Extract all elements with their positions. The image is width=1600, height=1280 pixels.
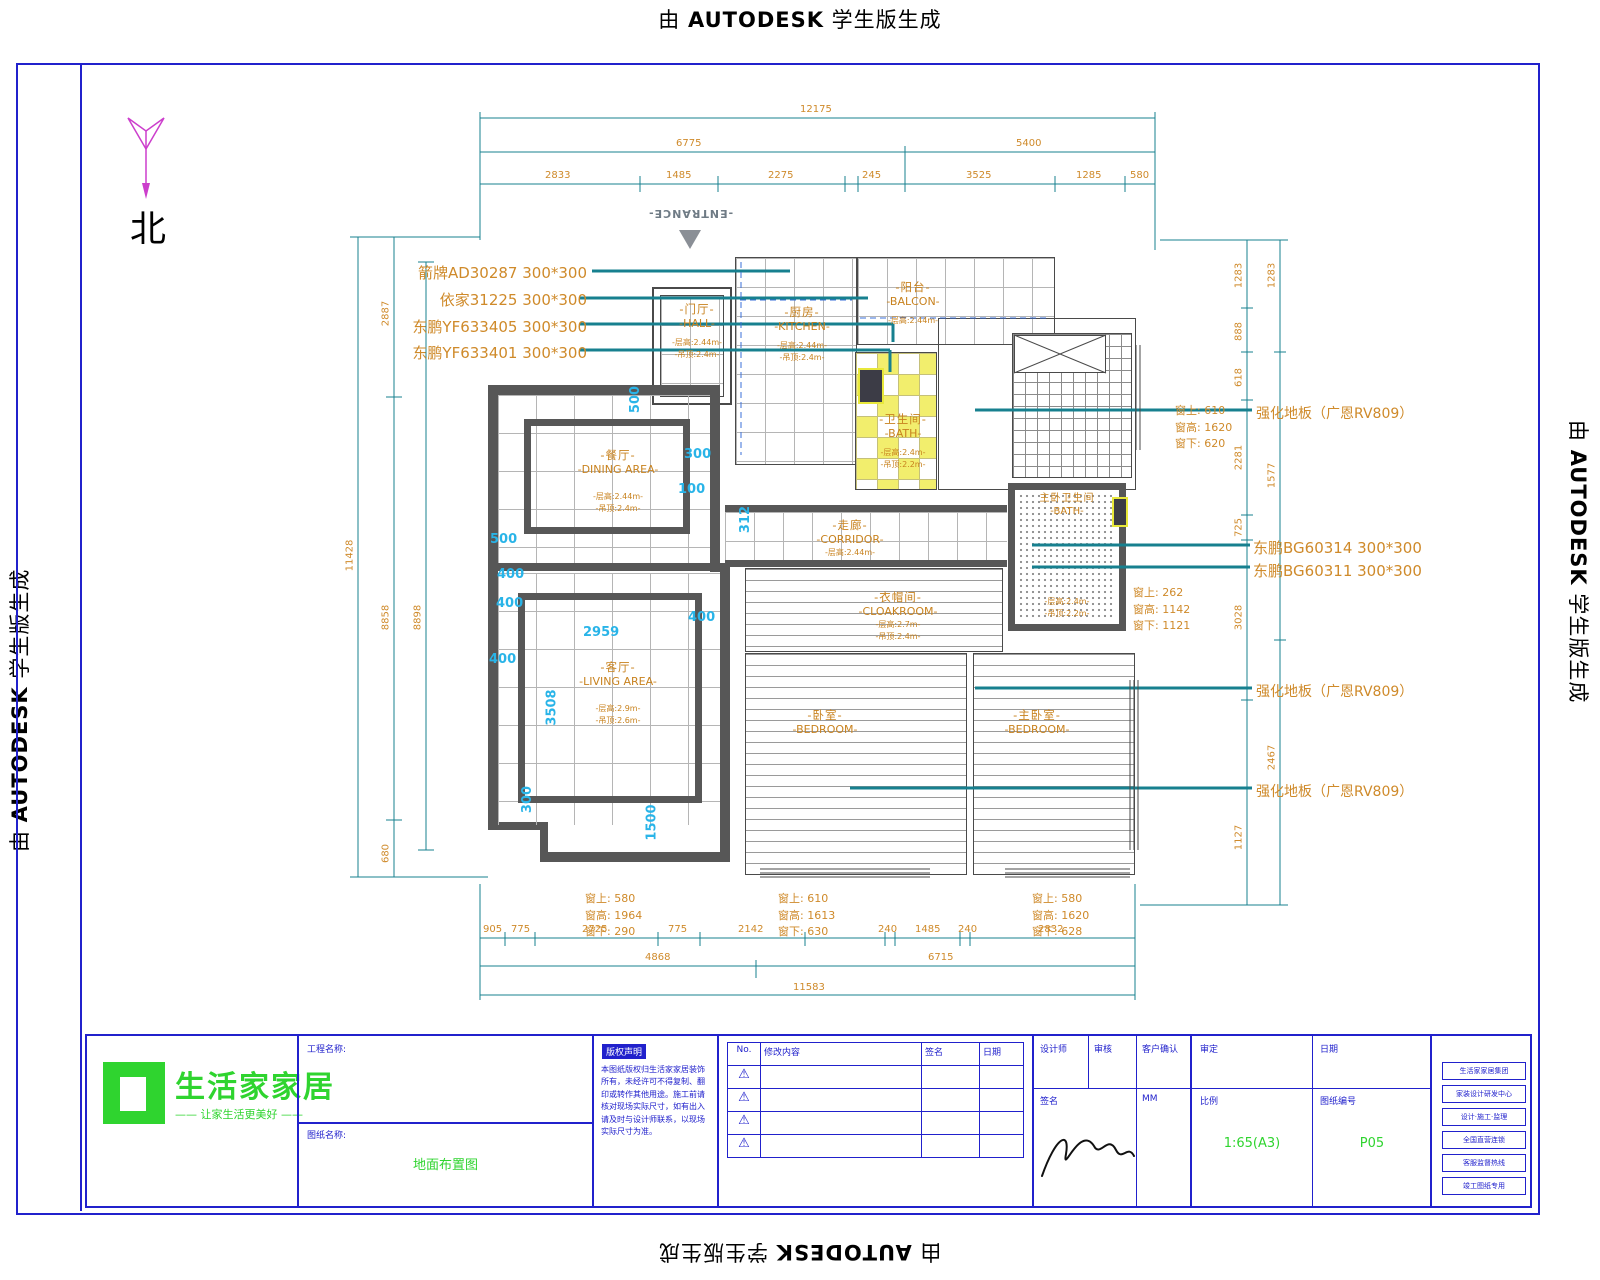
revision-date-cell xyxy=(979,1112,1023,1134)
floor-material-label: 强化地板（广恩RV809） xyxy=(1256,681,1413,701)
warning-triangle-icon: ⚠ xyxy=(738,1090,750,1105)
room-name-en: -BATH- xyxy=(1008,505,1126,518)
window-note: 窗高: 1620 xyxy=(1032,908,1089,925)
room-name-cn: -衣帽间- xyxy=(833,590,963,605)
wall-segment xyxy=(720,563,730,862)
revision-desc-cell xyxy=(760,1135,921,1157)
room-note: -层高:2.44m- xyxy=(785,547,915,559)
dim-label: 775 xyxy=(668,924,687,935)
room-name-en: -BEDROOM- xyxy=(972,723,1102,737)
title-block: 生活家家居 —— 让家生活更美好 —— 工程名称: 图纸名称: 地面布置图 版权… xyxy=(85,1034,1532,1208)
watermark-text: 由 xyxy=(912,1240,942,1264)
revision-sign-cell xyxy=(921,1112,979,1134)
dim-label: 6715 xyxy=(928,952,953,963)
tile-spec-label: 箭牌AD30287 300*300 xyxy=(382,262,587,283)
window-note: 窗高: 1142 xyxy=(1133,602,1190,619)
tile-offset: 312 xyxy=(738,506,753,533)
room-name-cn: -走廊- xyxy=(785,518,915,533)
dim-label: 618 xyxy=(1234,346,1245,410)
revision-sign-cell xyxy=(921,1089,979,1111)
tile-spec-label: 东鹏YF633401 300*300 xyxy=(382,342,587,363)
revision-desc-cell xyxy=(760,1089,921,1111)
drawing-name-value: 地面布置图 xyxy=(299,1154,592,1173)
room-name-cn: -卫生间- xyxy=(838,412,968,427)
wall-segment xyxy=(710,385,720,572)
window-note: 窗上: 610 xyxy=(1175,403,1232,420)
dim-label: 2833 xyxy=(545,170,570,181)
company-logo-icon xyxy=(103,1062,165,1124)
tile-offset: 400 xyxy=(688,610,715,625)
dim-label: 2832 xyxy=(1038,924,1063,935)
room-label-dining: -餐厅- -DINING AREA- -层高:2.44m- -吊顶:2.4m- xyxy=(553,448,683,514)
room-note: -层高:2.4m- xyxy=(838,447,968,459)
window-annotation: 窗上: 610 窗高: 1620 窗下: 620 xyxy=(1175,403,1232,453)
wall-segment xyxy=(488,385,720,395)
dim-label: 11583 xyxy=(793,982,825,993)
room-note: -层高:2.7m- xyxy=(833,619,963,631)
dim-label: 2142 xyxy=(738,924,763,935)
window-annotation: 窗上: 610 窗高: 1613 窗下: 630 xyxy=(778,891,835,941)
room-label-corridor: -走廊- -CORRIDOR- -层高:2.44m- xyxy=(785,518,915,559)
wall-segment xyxy=(540,852,730,862)
room-name-cn: -卧室- xyxy=(760,708,890,723)
dim-label: 3525 xyxy=(966,170,991,181)
drawing-sheet: 由 AUTODESK 学生版生成 由 AUTODESK 学生版生成 由 AUTO… xyxy=(0,0,1600,1280)
dim-label: 1577 xyxy=(1267,444,1278,508)
room-note: -吊顶:2.4m- xyxy=(553,503,683,515)
dim-label: 2281 xyxy=(1234,426,1245,490)
date-label: 日期 xyxy=(1320,1042,1338,1055)
revision-date-cell xyxy=(979,1089,1023,1111)
dim-label: 2467 xyxy=(1267,726,1278,790)
dim-label: 240 xyxy=(958,924,977,935)
notice-title: 版权声明 xyxy=(602,1044,646,1059)
dim-label: 1127 xyxy=(1234,806,1245,870)
approve-label: 审定 xyxy=(1200,1042,1218,1055)
dim-label: 4868 xyxy=(645,952,670,963)
window-note: 窗高: 1613 xyxy=(778,908,835,925)
room-note: -层高:2.4m- xyxy=(1012,596,1122,608)
title-block-scale-section: 审定 日期 比例 1:65(A3) 图纸编号 P05 xyxy=(1190,1036,1430,1206)
room-label-master-bath: 主卧卫生间 -BATH- xyxy=(1008,492,1126,518)
room-name-en: -BALCON- xyxy=(848,295,978,309)
tile-offset: 500 xyxy=(628,386,643,413)
company-info-boxes: 生活家家居集团 家装设计研发中心 设计·施工·监理 全国直营连锁 客服监督热线 … xyxy=(1442,1062,1526,1200)
wall-segment xyxy=(725,560,1007,567)
divider xyxy=(1034,1088,1190,1089)
revision-row: ⚠ xyxy=(728,1065,1023,1088)
tile-spec-label: 东鹏YF633405 300*300 xyxy=(382,316,587,337)
company-info-line: 设计·施工·监理 xyxy=(1442,1108,1526,1126)
floor-material-label: 强化地板（广恩RV809） xyxy=(1256,403,1413,423)
warning-triangle-icon: ⚠ xyxy=(738,1113,750,1128)
watermark-text: 学生版生成 xyxy=(658,1240,776,1264)
revision-row: ⚠ xyxy=(728,1088,1023,1111)
watermark-bottom: 由 AUTODESK 学生版生成 xyxy=(0,1238,1600,1268)
room-name-en: -DINING AREA- xyxy=(553,463,683,477)
room-name-en: -LIVING AREA- xyxy=(553,675,683,689)
room-name-cn: -客厅- xyxy=(553,660,683,675)
watermark-text: 由 xyxy=(1566,420,1590,450)
tile-offset: 500 xyxy=(490,532,517,547)
drawing-name-label: 图纸名称: xyxy=(307,1128,346,1141)
revision-date-cell xyxy=(979,1135,1023,1157)
room-note: -吊顶:2.2m- xyxy=(838,459,968,471)
title-block-info-section: 生活家家居集团 家装设计研发中心 设计·施工·监理 全国直营连锁 客服监督热线 … xyxy=(1430,1036,1534,1206)
dim-label: 580 xyxy=(1130,170,1149,181)
tile-spec-label: 东鹏BG60314 300*300 xyxy=(1253,537,1422,558)
company-logo-inner xyxy=(120,1077,146,1111)
room-label-bedroom-right: -主卧室- -BEDROOM- xyxy=(972,708,1102,737)
revision-desc-cell xyxy=(760,1112,921,1134)
dim-label: 725 xyxy=(1234,496,1245,560)
room-label-living: -客厅- -LIVING AREA- -层高:2.9m- -吊顶:2.6m- xyxy=(553,660,683,726)
unit-label: MM xyxy=(1142,1094,1158,1104)
window-note: 窗上: 580 xyxy=(1032,891,1089,908)
watermark-text: 学生版生成 xyxy=(824,8,942,32)
revision-row: ⚠ xyxy=(728,1134,1023,1157)
client-confirm-label: 客户确认 xyxy=(1142,1042,1178,1055)
revision-col-desc: 修改内容 xyxy=(760,1043,921,1065)
tile-offset: 100 xyxy=(678,482,705,497)
watermark-brand: AUTODESK xyxy=(776,1240,912,1264)
room-name-en: -CORRIDOR- xyxy=(785,533,915,547)
scale-value: 1:65(A3) xyxy=(1192,1136,1312,1151)
window-note: 窗高: 1964 xyxy=(585,908,642,925)
dim-label: 2725 xyxy=(582,924,607,935)
project-name-label: 工程名称: xyxy=(307,1042,346,1055)
dim-label: 1485 xyxy=(915,924,940,935)
window-note: 窗高: 1620 xyxy=(1175,420,1232,437)
window-note: 窗下: 620 xyxy=(1175,436,1232,453)
revision-sign-cell xyxy=(921,1135,979,1157)
company-info-line: 全国直营连锁 xyxy=(1442,1131,1526,1149)
room-note: -吊顶:2.2m- xyxy=(1012,608,1122,620)
room-note: -吊顶:2.4m- xyxy=(737,352,867,364)
dim-label: 8898 xyxy=(413,586,424,650)
dim-label: 775 xyxy=(511,924,530,935)
room-note: -层高:2.44m- xyxy=(737,340,867,352)
entrance-arrow-icon xyxy=(679,230,701,249)
title-block-logo-section: 生活家家居 —— 让家生活更美好 —— xyxy=(87,1036,297,1206)
room-label-bath: -卫生间- -BATH- -层高:2.4m- -吊顶:2.2m- xyxy=(838,412,968,470)
room-name-cn: -主卧室- xyxy=(972,708,1102,723)
dim-label: 680 xyxy=(381,822,392,886)
watermark-brand: AUTODESK xyxy=(688,8,824,32)
company-info-line: 客服监督热线 xyxy=(1442,1154,1526,1172)
checker-label: 审核 xyxy=(1094,1042,1112,1055)
notice-body: 本图纸版权归生活家家居装饰所有，未经许可不得复制、翻印或转作其他用途。施工前请核… xyxy=(601,1064,711,1138)
dim-label: 1283 xyxy=(1234,244,1245,308)
window-annotation: 窗上: 262 窗高: 1142 窗下: 1121 xyxy=(1133,585,1190,635)
wardrobe-crossed-box xyxy=(1014,335,1106,373)
title-block-name-section: 工程名称: 图纸名称: 地面布置图 xyxy=(297,1036,592,1206)
company-tagline: —— 让家生活更美好 —— xyxy=(175,1106,303,1122)
warning-triangle-icon: ⚠ xyxy=(738,1136,750,1151)
tile-spec-label: 依家31225 300*300 xyxy=(382,289,587,310)
tile-offset: 2959 xyxy=(583,625,619,640)
sheet-border-inner-line xyxy=(80,63,82,1211)
dim-label: 1283 xyxy=(1267,244,1278,308)
master-bath-notes: -层高:2.4m- -吊顶:2.2m- xyxy=(1012,596,1122,619)
dim-label: 8858 xyxy=(381,586,392,650)
scale-label: 比例 xyxy=(1200,1094,1218,1107)
tile-offset: 300 xyxy=(684,447,711,462)
room-name-en: -CLOAKROOM- xyxy=(833,605,963,619)
dim-label: 240 xyxy=(878,924,897,935)
divider xyxy=(1088,1036,1089,1088)
warning-triangle-icon: ⚠ xyxy=(738,1067,750,1082)
dim-label: 3028 xyxy=(1234,586,1245,650)
dim-label: 11428 xyxy=(345,524,356,588)
room-name-en: -BEDROOM- xyxy=(760,723,890,737)
wall-segment xyxy=(725,505,1007,512)
bedroom-left-floor xyxy=(745,653,967,875)
revision-col-date: 日期 xyxy=(979,1043,1023,1065)
window-note: 窗上: 262 xyxy=(1133,585,1190,602)
room-note: -层高:2.9m- xyxy=(553,703,683,715)
room-label-balcony: -阳台- -BALCON- -层高:2.44m- xyxy=(848,280,978,327)
room-note: -吊顶:2.4m- xyxy=(833,631,963,643)
designer-signature xyxy=(1036,1106,1136,1196)
tile-offset: 300 xyxy=(520,786,535,813)
room-note: -吊顶:2.6m- xyxy=(553,715,683,727)
divider xyxy=(299,1122,592,1124)
company-info-line: 家装设计研发中心 xyxy=(1442,1085,1526,1103)
revision-desc-cell xyxy=(760,1066,921,1088)
room-name-en: -BATH- xyxy=(838,427,968,441)
sheet-number-label: 图纸编号 xyxy=(1320,1094,1356,1107)
watermark-right: 由 AUTODESK 学生版生成 xyxy=(1564,420,1594,703)
wall-segment xyxy=(488,563,730,571)
dim-label: 5400 xyxy=(1016,138,1041,149)
revision-col-no: No. xyxy=(728,1043,760,1065)
divider xyxy=(1192,1088,1430,1089)
bedroom-right-floor xyxy=(973,653,1135,875)
tile-offset: 400 xyxy=(497,567,524,582)
designer-label: 设计师 xyxy=(1040,1042,1067,1055)
floor-material-label: 强化地板（广恩RV809） xyxy=(1256,781,1413,801)
tile-offset: 3508 xyxy=(545,689,560,725)
dim-label: 905 xyxy=(483,924,502,935)
revision-date-cell xyxy=(979,1066,1023,1088)
watermark-top: 由 AUTODESK 学生版生成 xyxy=(0,4,1600,34)
room-note: -层高:2.44m- xyxy=(848,315,978,327)
dim-label: 2887 xyxy=(381,282,392,346)
north-compass-icon xyxy=(122,113,170,205)
dim-label: 6775 xyxy=(676,138,701,149)
revision-col-sign: 签名 xyxy=(921,1043,979,1065)
company-info-line: 竣工图纸专用 xyxy=(1442,1177,1526,1195)
watermark-text: 由 xyxy=(658,8,688,32)
room-name-cn: -阳台- xyxy=(848,280,978,295)
divider xyxy=(1312,1036,1313,1206)
tile-offset: 400 xyxy=(489,652,516,667)
divider xyxy=(1136,1036,1137,1206)
dim-label: 2275 xyxy=(768,170,793,181)
room-note: -层高:2.44m- xyxy=(553,491,683,503)
window-note: 窗下: 1121 xyxy=(1133,618,1190,635)
revision-row: ⚠ xyxy=(728,1111,1023,1134)
watermark-brand: AUTODESK xyxy=(1566,450,1590,586)
tile-offset: 1500 xyxy=(645,804,660,840)
revision-header-row: No. 修改内容 签名 日期 xyxy=(728,1043,1023,1065)
window-note: 窗上: 580 xyxy=(585,891,642,908)
window-note: 窗下: 630 xyxy=(778,924,835,941)
revision-sign-cell xyxy=(921,1066,979,1088)
company-info-line: 生活家家居集团 xyxy=(1442,1062,1526,1080)
window-note: 窗上: 610 xyxy=(778,891,835,908)
dim-label: 1485 xyxy=(666,170,691,181)
north-label: 北 xyxy=(130,200,166,252)
sheet-number-value: P05 xyxy=(1312,1136,1432,1151)
title-block-signature-section: 设计师 审核 客户确认 签名 MM xyxy=(1032,1036,1190,1206)
entrance-label: -ENTRANCE- xyxy=(648,207,733,220)
tile-offset: 400 xyxy=(496,596,523,611)
room-name-cn: -餐厅- xyxy=(553,448,683,463)
dim-label: 1285 xyxy=(1076,170,1101,181)
watermark-text: 学生版生成 xyxy=(1566,586,1590,704)
title-block-revision-section: No. 修改内容 签名 日期 ⚠ ⚠ ⚠ xyxy=(717,1036,1032,1206)
dim-label: 245 xyxy=(862,170,881,181)
room-label-cloakroom: -衣帽间- -CLOAKROOM- -层高:2.7m- -吊顶:2.4m- xyxy=(833,590,963,642)
title-block-notice-section: 版权声明 本图纸版权归生活家家居装饰所有，未经许可不得复制、翻印或转作其他用途。… xyxy=(592,1036,717,1206)
room-label-bedroom-left: -卧室- -BEDROOM- xyxy=(760,708,890,737)
room-name-cn: 主卧卫生间 xyxy=(1008,492,1126,505)
washing-machine xyxy=(858,368,884,404)
tile-spec-label: 东鹏BG60311 300*300 xyxy=(1253,560,1422,581)
revision-table: No. 修改内容 签名 日期 ⚠ ⚠ ⚠ xyxy=(727,1042,1024,1158)
dim-label: 12175 xyxy=(800,104,832,115)
